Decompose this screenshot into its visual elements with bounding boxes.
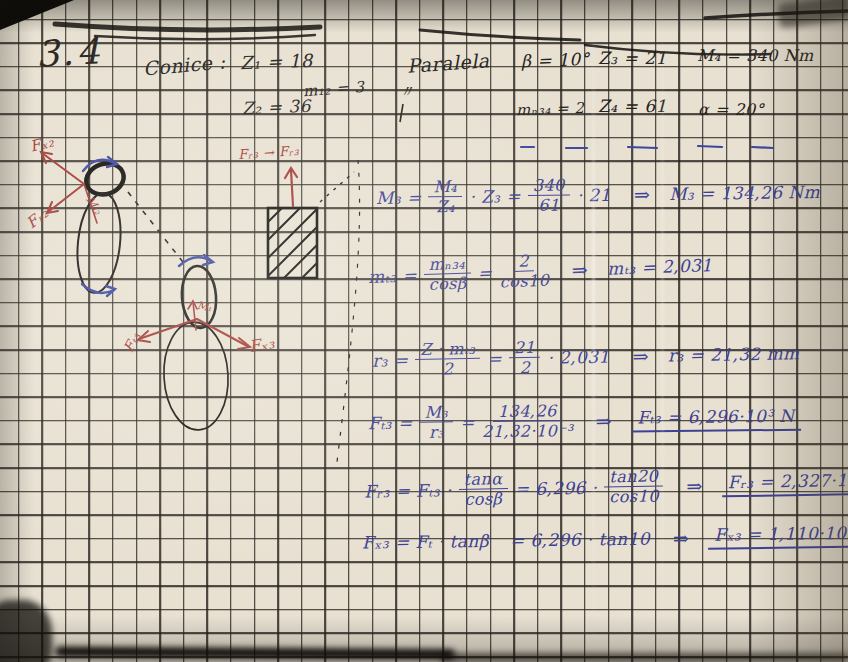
eq-result: M₃ = 134,26 Nm	[669, 182, 820, 204]
given-beta: β = 10°	[521, 49, 590, 71]
equation-ft3: Fₜ₃ = M₃ r₃ = 134,26 21,32·10⁻³ ⇒ Fₜ₃ = …	[368, 400, 801, 442]
fraction-numerator: 134,26	[493, 402, 562, 422]
eq-lhs: mₜ₃ =	[368, 265, 417, 287]
given-z1: Z₁ = 18	[240, 50, 313, 74]
fraction: 21 2	[509, 339, 541, 377]
eq-lhs: Fₜ₃ =	[368, 413, 413, 433]
fraction-numerator: Z · mₜ₃	[415, 340, 481, 361]
eq-term: · 2,031	[547, 347, 610, 368]
fraction-numerator: 21	[509, 339, 541, 359]
fraction-numerator: 340	[528, 176, 570, 196]
fraction-numerator: 2	[513, 252, 534, 272]
implies-arrow: ⇒	[634, 183, 651, 205]
eq-term: = 6,296 · tan10	[510, 528, 650, 550]
bottom-left-corner-shadow	[0, 600, 52, 662]
given-m4: M₄ = 340 Nm	[697, 46, 814, 65]
eq-term: =	[460, 412, 475, 432]
implies-arrow: ⇒	[596, 410, 613, 432]
eq-term: =	[477, 263, 492, 283]
eq-result: Fᵣ₃ = 2,327·10³ N	[721, 470, 848, 498]
given-alpha: α = 20°	[698, 100, 764, 119]
notebook-page-photo: 3.4 Conice : Z₁ = 18 m₁₂ = 3 Z₂ = 36 〃 P…	[0, 0, 848, 662]
eq-term: =	[487, 348, 502, 368]
fraction-denominator: cos10	[499, 271, 549, 291]
fraction-numerator: mₙ₃₄	[423, 254, 470, 275]
eq-result: Fₓ₃ = 1,110·10³ N	[708, 522, 848, 549]
eq-result: mₜ₃ = 2,031	[607, 255, 713, 279]
eq-lhs: Fₓ₃ = Fₜ · tanβ	[362, 530, 489, 552]
eq-result: r₃ = 21,32 mm	[668, 343, 800, 365]
eq-result: Fₜ₃ = 6,296·10³ N	[631, 406, 801, 433]
paper-crease	[592, 0, 595, 662]
fraction: M₃ r₃	[419, 403, 453, 441]
fraction: 340 61	[528, 176, 571, 214]
eq-lhs: r₃ =	[372, 350, 409, 371]
fraction-denominator: cosβ	[428, 274, 467, 294]
bottom-edge-shadow	[440, 653, 848, 662]
equation-r3: r₃ = Z · mₜ₃ 2 = 21 2 · 2,031 ⇒ r₃ = 21,…	[372, 334, 800, 379]
fraction-denominator: cosβ	[464, 490, 502, 509]
implies-arrow: ⇒	[571, 258, 588, 281]
given-z4: Z₄ = 61	[598, 96, 667, 116]
ditto-mark: 〃	[398, 80, 416, 103]
fraction-denominator: r₃	[429, 423, 444, 442]
equation-m3: M₃ = M₄ Z₄ · Z₃ = 340 61 · 21 ⇒ M₃ = 134…	[376, 173, 820, 217]
fraction-denominator: 21,32·10⁻³	[482, 422, 573, 441]
eq-term: · Z₃ =	[469, 186, 521, 207]
given-mn34: mₙ₃₄ = 2	[516, 99, 585, 119]
eq-term: = 6,296 ·	[514, 477, 597, 498]
implies-arrow: ⇒	[632, 345, 649, 367]
section-number: 3.4	[35, 30, 103, 74]
given-z2: Z₂ = 36	[242, 96, 311, 118]
eq-lhs: Fᵣ₃ = Fₜ₃ ·	[364, 480, 452, 502]
fraction: tanα cosβ	[458, 470, 508, 509]
implies-arrow: ⇒	[673, 527, 690, 549]
fraction-numerator: tanα	[458, 470, 507, 490]
fraction: Z · mₜ₃ 2	[415, 340, 481, 379]
fraction: mₙ₃₄ cosβ	[423, 254, 471, 293]
fraction-denominator: Z₄	[436, 197, 455, 216]
given-z3: Z₃ = 21	[598, 48, 667, 68]
fraction-denominator: 61	[538, 196, 560, 215]
fraction-numerator: M₄	[428, 178, 462, 198]
fraction: M₄ Z₄	[428, 178, 462, 216]
fraction-denominator: 2	[442, 360, 453, 379]
mt3-label: Mₜ	[196, 299, 213, 314]
implies-arrow: ⇒	[686, 475, 703, 497]
fraction: tan20 cos10	[604, 467, 664, 506]
fraction: 2 cos10	[499, 252, 550, 292]
fraction-numerator: tan20	[604, 467, 663, 487]
fraction: 134,26 21,32·10⁻³	[482, 402, 573, 441]
paper-crease	[661, 0, 664, 662]
fraction-numerator: M₃	[419, 403, 453, 423]
fraction-denominator: 2	[519, 358, 530, 377]
eq-lhs: M₃ =	[376, 187, 422, 208]
fraction-denominator: cos10	[609, 487, 659, 506]
